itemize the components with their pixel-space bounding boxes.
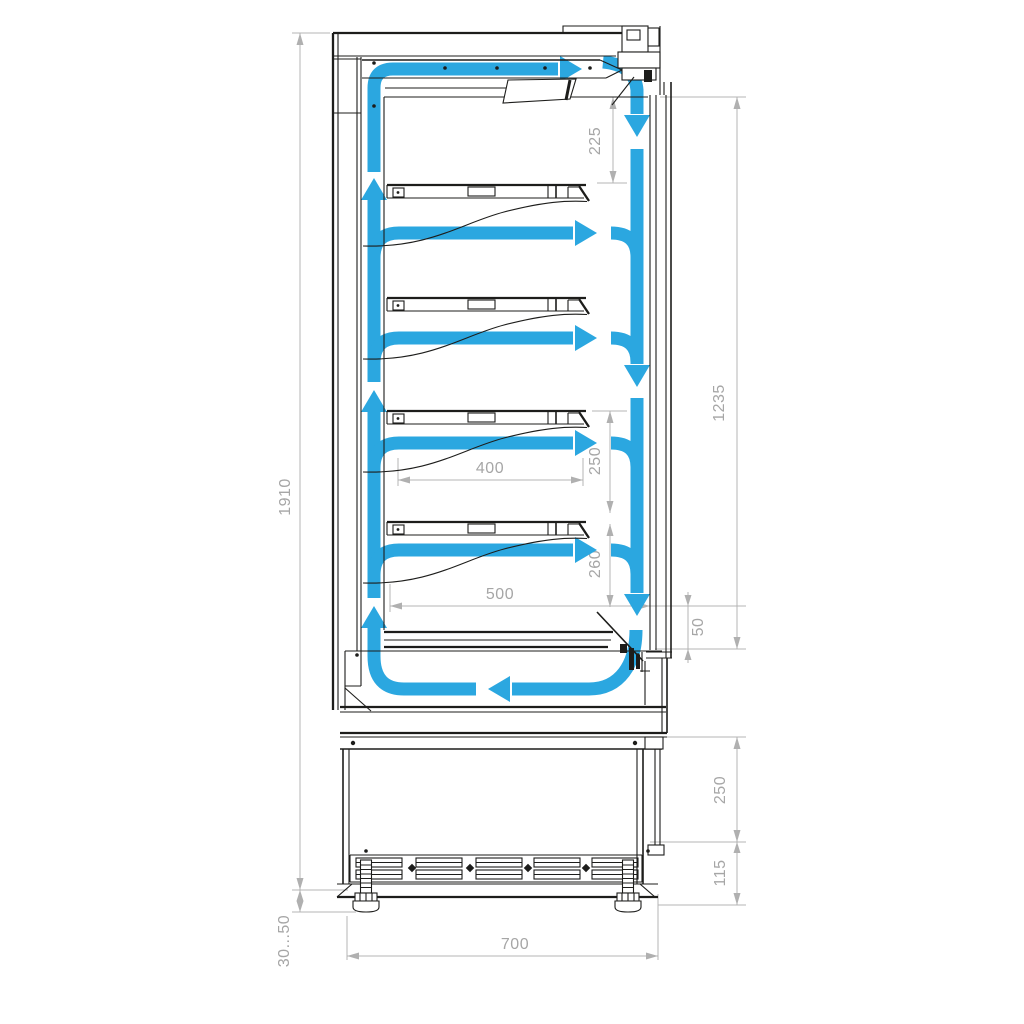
dim-label-shelf-depth: 400 bbox=[476, 460, 504, 477]
dim-label-shelf-pitch-upper: 250 bbox=[587, 447, 604, 475]
shelf-2 bbox=[363, 298, 589, 359]
dim-label-base-section: 250 bbox=[712, 776, 729, 804]
display-case-section-drawing: 1910 30...50 700 225 1235 250 260 400 50… bbox=[0, 0, 1024, 1024]
dimension-annotations: 1910 30...50 700 225 1235 250 260 400 50… bbox=[276, 33, 746, 967]
airflow-arrows bbox=[361, 56, 650, 702]
glass-front bbox=[646, 82, 672, 658]
airflow-bottom-left-curve bbox=[374, 628, 476, 689]
adjustable-foot-left bbox=[353, 860, 379, 912]
base-frame bbox=[340, 733, 667, 749]
dim-label-display-opening: 1235 bbox=[711, 384, 728, 422]
dim-label-overall-height: 1910 bbox=[277, 478, 294, 516]
dim-label-overall-depth: 700 bbox=[501, 936, 529, 953]
dim-label-grille-height: 115 bbox=[712, 859, 729, 886]
dim-label-air-return-gap: 50 bbox=[690, 618, 707, 637]
ventilation-grille bbox=[356, 858, 638, 879]
technical-drawing-page: 1910 30...50 700 225 1235 250 260 400 50… bbox=[0, 0, 1024, 1024]
bottom-tray bbox=[384, 612, 650, 672]
airflow-bottom-return bbox=[512, 630, 636, 689]
dim-label-adjustable-feet: 30...50 bbox=[276, 915, 293, 967]
dim-label-base-shelf-depth: 500 bbox=[486, 586, 514, 603]
base-plinth bbox=[337, 749, 664, 897]
dim-label-top-duct-gap: 225 bbox=[587, 127, 604, 155]
